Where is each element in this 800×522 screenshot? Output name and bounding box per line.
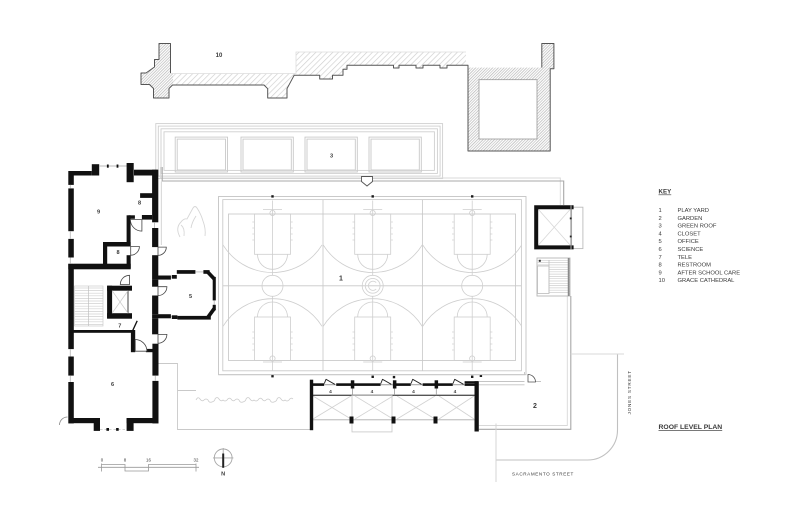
svg-text:32: 32 xyxy=(194,458,199,463)
svg-text:CLOSET: CLOSET xyxy=(678,231,702,237)
svg-text:8: 8 xyxy=(138,200,141,206)
svg-text:9: 9 xyxy=(659,270,662,276)
svg-text:2: 2 xyxy=(659,216,662,222)
svg-text:8: 8 xyxy=(659,263,662,269)
svg-text:4: 4 xyxy=(412,389,415,395)
svg-text:2: 2 xyxy=(533,403,537,410)
svg-text:AFTER SCHOOL CARE: AFTER SCHOOL CARE xyxy=(678,270,741,276)
svg-text:9: 9 xyxy=(97,209,100,215)
svg-text:PLAY YARD: PLAY YARD xyxy=(678,208,709,214)
svg-text:8: 8 xyxy=(116,250,119,256)
svg-text:TELE: TELE xyxy=(678,255,693,261)
svg-text:10: 10 xyxy=(659,278,665,284)
svg-text:GREEN ROOF: GREEN ROOF xyxy=(678,224,717,230)
svg-text:5: 5 xyxy=(189,294,192,300)
svg-text:3: 3 xyxy=(659,224,662,230)
svg-text:SACRAMENTO STREET: SACRAMENTO STREET xyxy=(512,472,574,477)
svg-text:6: 6 xyxy=(111,382,114,388)
svg-text:SCIENCE: SCIENCE xyxy=(678,247,704,253)
svg-text:N: N xyxy=(221,472,225,478)
svg-text:10: 10 xyxy=(216,53,223,59)
svg-text:KEY: KEY xyxy=(659,189,673,196)
svg-text:6: 6 xyxy=(659,247,662,253)
svg-text:4: 4 xyxy=(371,389,374,395)
svg-text:JONES STREET: JONES STREET xyxy=(627,370,632,414)
svg-text:OFFICE: OFFICE xyxy=(678,239,699,245)
svg-text:1: 1 xyxy=(659,208,662,214)
svg-text:7: 7 xyxy=(659,255,662,261)
svg-text:ROOF LEVEL PLAN: ROOF LEVEL PLAN xyxy=(659,424,723,431)
svg-text:7: 7 xyxy=(118,323,121,329)
svg-text:GRACE CATHEDRAL: GRACE CATHEDRAL xyxy=(678,278,736,284)
svg-text:4: 4 xyxy=(454,389,457,395)
svg-text:RESTROOM: RESTROOM xyxy=(678,263,712,269)
svg-text:5: 5 xyxy=(659,239,662,245)
svg-text:4: 4 xyxy=(329,389,332,395)
svg-text:1: 1 xyxy=(339,276,343,283)
svg-text:3: 3 xyxy=(330,154,333,160)
svg-text:16: 16 xyxy=(146,458,151,463)
svg-text:GARDEN: GARDEN xyxy=(678,216,703,222)
